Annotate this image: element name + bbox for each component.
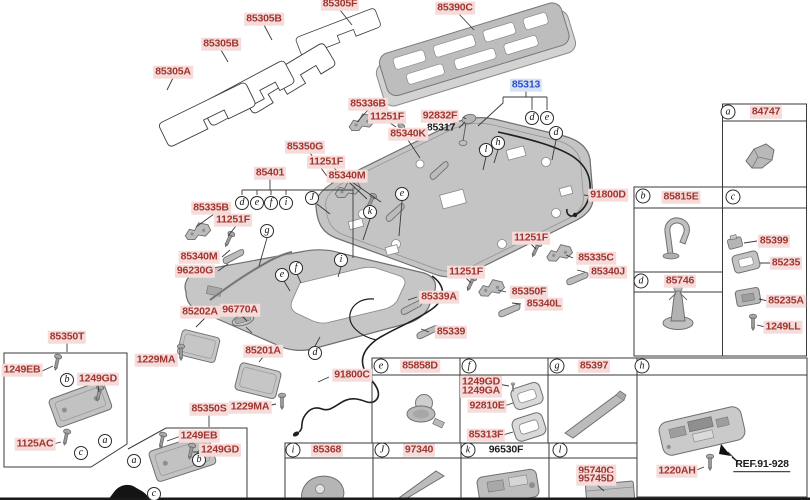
part-label-85305B[interactable]: 85305B bbox=[201, 38, 241, 51]
part-label-85340L[interactable]: 85340L bbox=[525, 298, 563, 311]
front-headliner-panel-art bbox=[185, 250, 435, 351]
part-label-11251F[interactable]: 11251F bbox=[447, 266, 485, 279]
callout-i: i bbox=[334, 253, 348, 267]
part-label-96230G[interactable]: 96230G bbox=[175, 265, 215, 278]
part-label-85746[interactable]: 85746 bbox=[664, 275, 696, 288]
part-label-85399[interactable]: 85399 bbox=[758, 235, 790, 248]
part-label-85305B[interactable]: 85305B bbox=[244, 13, 284, 26]
part-label-85317: 85317 bbox=[425, 122, 457, 135]
part-label-11251F[interactable]: 11251F bbox=[512, 232, 550, 245]
part-label-11251F[interactable]: 11251F bbox=[368, 111, 406, 124]
callout-f: f bbox=[462, 359, 477, 374]
callout-d: d bbox=[634, 274, 649, 289]
callout-i: i bbox=[279, 196, 293, 210]
part-label-1125AC[interactable]: 1125AC bbox=[15, 438, 56, 451]
part-label-85858D[interactable]: 85858D bbox=[400, 360, 440, 373]
part-label-85350T[interactable]: 85350T bbox=[48, 331, 86, 344]
callout-c: c bbox=[147, 487, 161, 500]
callout-a: a bbox=[721, 105, 736, 120]
callout-l: l bbox=[553, 443, 568, 458]
part-label-85350G[interactable]: 85350G bbox=[285, 141, 325, 154]
part-label-85815E[interactable]: 85815E bbox=[661, 191, 700, 204]
callout-e: e bbox=[275, 268, 289, 282]
callout-k: k bbox=[461, 443, 476, 458]
part-label-85390C[interactable]: 85390C bbox=[435, 2, 475, 15]
part-label-95745D[interactable]: 95745D bbox=[576, 473, 616, 486]
part-label-84747[interactable]: 84747 bbox=[750, 106, 782, 119]
part-label-85340M[interactable]: 85340M bbox=[327, 170, 368, 183]
part-label-85305A[interactable]: 85305A bbox=[153, 66, 193, 79]
callout-f: f bbox=[289, 261, 303, 275]
part-label-85235A[interactable]: 85235A bbox=[766, 295, 806, 308]
part-label-1249GD[interactable]: 1249GD bbox=[199, 444, 241, 457]
callout-i: i bbox=[286, 443, 301, 458]
part-label-85350F[interactable]: 85350F bbox=[510, 286, 548, 299]
callout-e: e bbox=[374, 359, 389, 374]
callout-g: g bbox=[550, 359, 565, 374]
part-label-85201A[interactable]: 85201A bbox=[243, 345, 283, 358]
callout-l: l bbox=[479, 143, 493, 157]
part-label-1249GD[interactable]: 1249GD bbox=[77, 373, 119, 386]
callout-k: k bbox=[363, 205, 377, 219]
part-label-1229MA[interactable]: 1229MA bbox=[135, 354, 178, 367]
part-label-85335C[interactable]: 85335C bbox=[576, 252, 616, 265]
part-label-85340K[interactable]: 85340K bbox=[388, 128, 428, 141]
roof-pad-art bbox=[371, 0, 578, 108]
part-label-1220AH[interactable]: 1220AH bbox=[656, 465, 697, 478]
callout-e: e bbox=[540, 111, 554, 125]
part-label-85340M[interactable]: 85340M bbox=[179, 251, 220, 264]
headlining-parts-diagram: 85305F85305B85305B85305A85390C8531385336… bbox=[0, 0, 810, 500]
callout-J: J bbox=[305, 191, 319, 205]
part-label-96770A[interactable]: 96770A bbox=[220, 304, 260, 317]
reference-table-right bbox=[634, 104, 807, 356]
part-label-1249EB[interactable]: 1249EB bbox=[179, 430, 220, 443]
callout-e: e bbox=[395, 187, 409, 201]
part-label-85339A[interactable]: 85339A bbox=[419, 291, 459, 304]
part-label-96530F: 96530F bbox=[487, 444, 525, 457]
callout-b: b bbox=[60, 373, 74, 387]
part-label-85202A[interactable]: 85202A bbox=[180, 306, 220, 319]
part-label-85305F[interactable]: 85305F bbox=[321, 0, 359, 10]
callout-a: a bbox=[98, 434, 112, 448]
callout-h: h bbox=[491, 136, 505, 150]
part-label-85235[interactable]: 85235 bbox=[770, 257, 802, 270]
part-label-85368[interactable]: 85368 bbox=[311, 444, 343, 457]
callout-a: a bbox=[127, 454, 141, 468]
callout-c: c bbox=[74, 446, 88, 460]
callout-d: d bbox=[308, 346, 322, 360]
callout-d: d bbox=[549, 126, 563, 140]
part-label-91800C[interactable]: 91800C bbox=[332, 369, 372, 382]
part-label-11251F[interactable]: 11251F bbox=[214, 214, 252, 227]
callout-h: h bbox=[635, 359, 650, 374]
part-label-85336B[interactable]: 85336B bbox=[348, 98, 388, 111]
part-label-1229MA[interactable]: 1229MA bbox=[229, 401, 272, 414]
part-label-91800D[interactable]: 91800D bbox=[588, 189, 628, 202]
callout-b: b bbox=[636, 189, 651, 204]
part-label-85350S[interactable]: 85350S bbox=[189, 403, 228, 416]
part-label-85401[interactable]: 85401 bbox=[254, 167, 286, 180]
diagram-line-art bbox=[0, 0, 810, 500]
part-label-92810E[interactable]: 92810E bbox=[467, 400, 506, 413]
part-label-85313F[interactable]: 85313F bbox=[467, 429, 505, 442]
callout-g: g bbox=[260, 224, 274, 238]
part-label-1249GA[interactable]: 1249GA bbox=[460, 385, 502, 398]
part-label-85397[interactable]: 85397 bbox=[578, 360, 610, 373]
part-label-1249LL[interactable]: 1249LL bbox=[764, 321, 803, 334]
callout-c: c bbox=[726, 190, 741, 205]
part-label-85335B[interactable]: 85335B bbox=[191, 202, 231, 215]
part-label-85313[interactable]: 85313 bbox=[510, 79, 542, 92]
callout-e: e bbox=[250, 196, 264, 210]
callout-d: d bbox=[525, 111, 539, 125]
part-label-92832F[interactable]: 92832F bbox=[421, 110, 459, 123]
part-label-85339[interactable]: 85339 bbox=[435, 326, 467, 339]
callout-d: d bbox=[235, 196, 249, 210]
callout-f: f bbox=[264, 196, 278, 210]
part-label-11251F[interactable]: 11251F bbox=[307, 156, 345, 169]
part-label-85340J[interactable]: 85340J bbox=[589, 266, 627, 279]
part-label-1249EB[interactable]: 1249EB bbox=[2, 364, 43, 377]
ref-label-REF.91-928: REF.91-928 bbox=[733, 458, 790, 472]
part-label-97340[interactable]: 97340 bbox=[403, 444, 435, 457]
callout-J: J bbox=[375, 443, 390, 458]
